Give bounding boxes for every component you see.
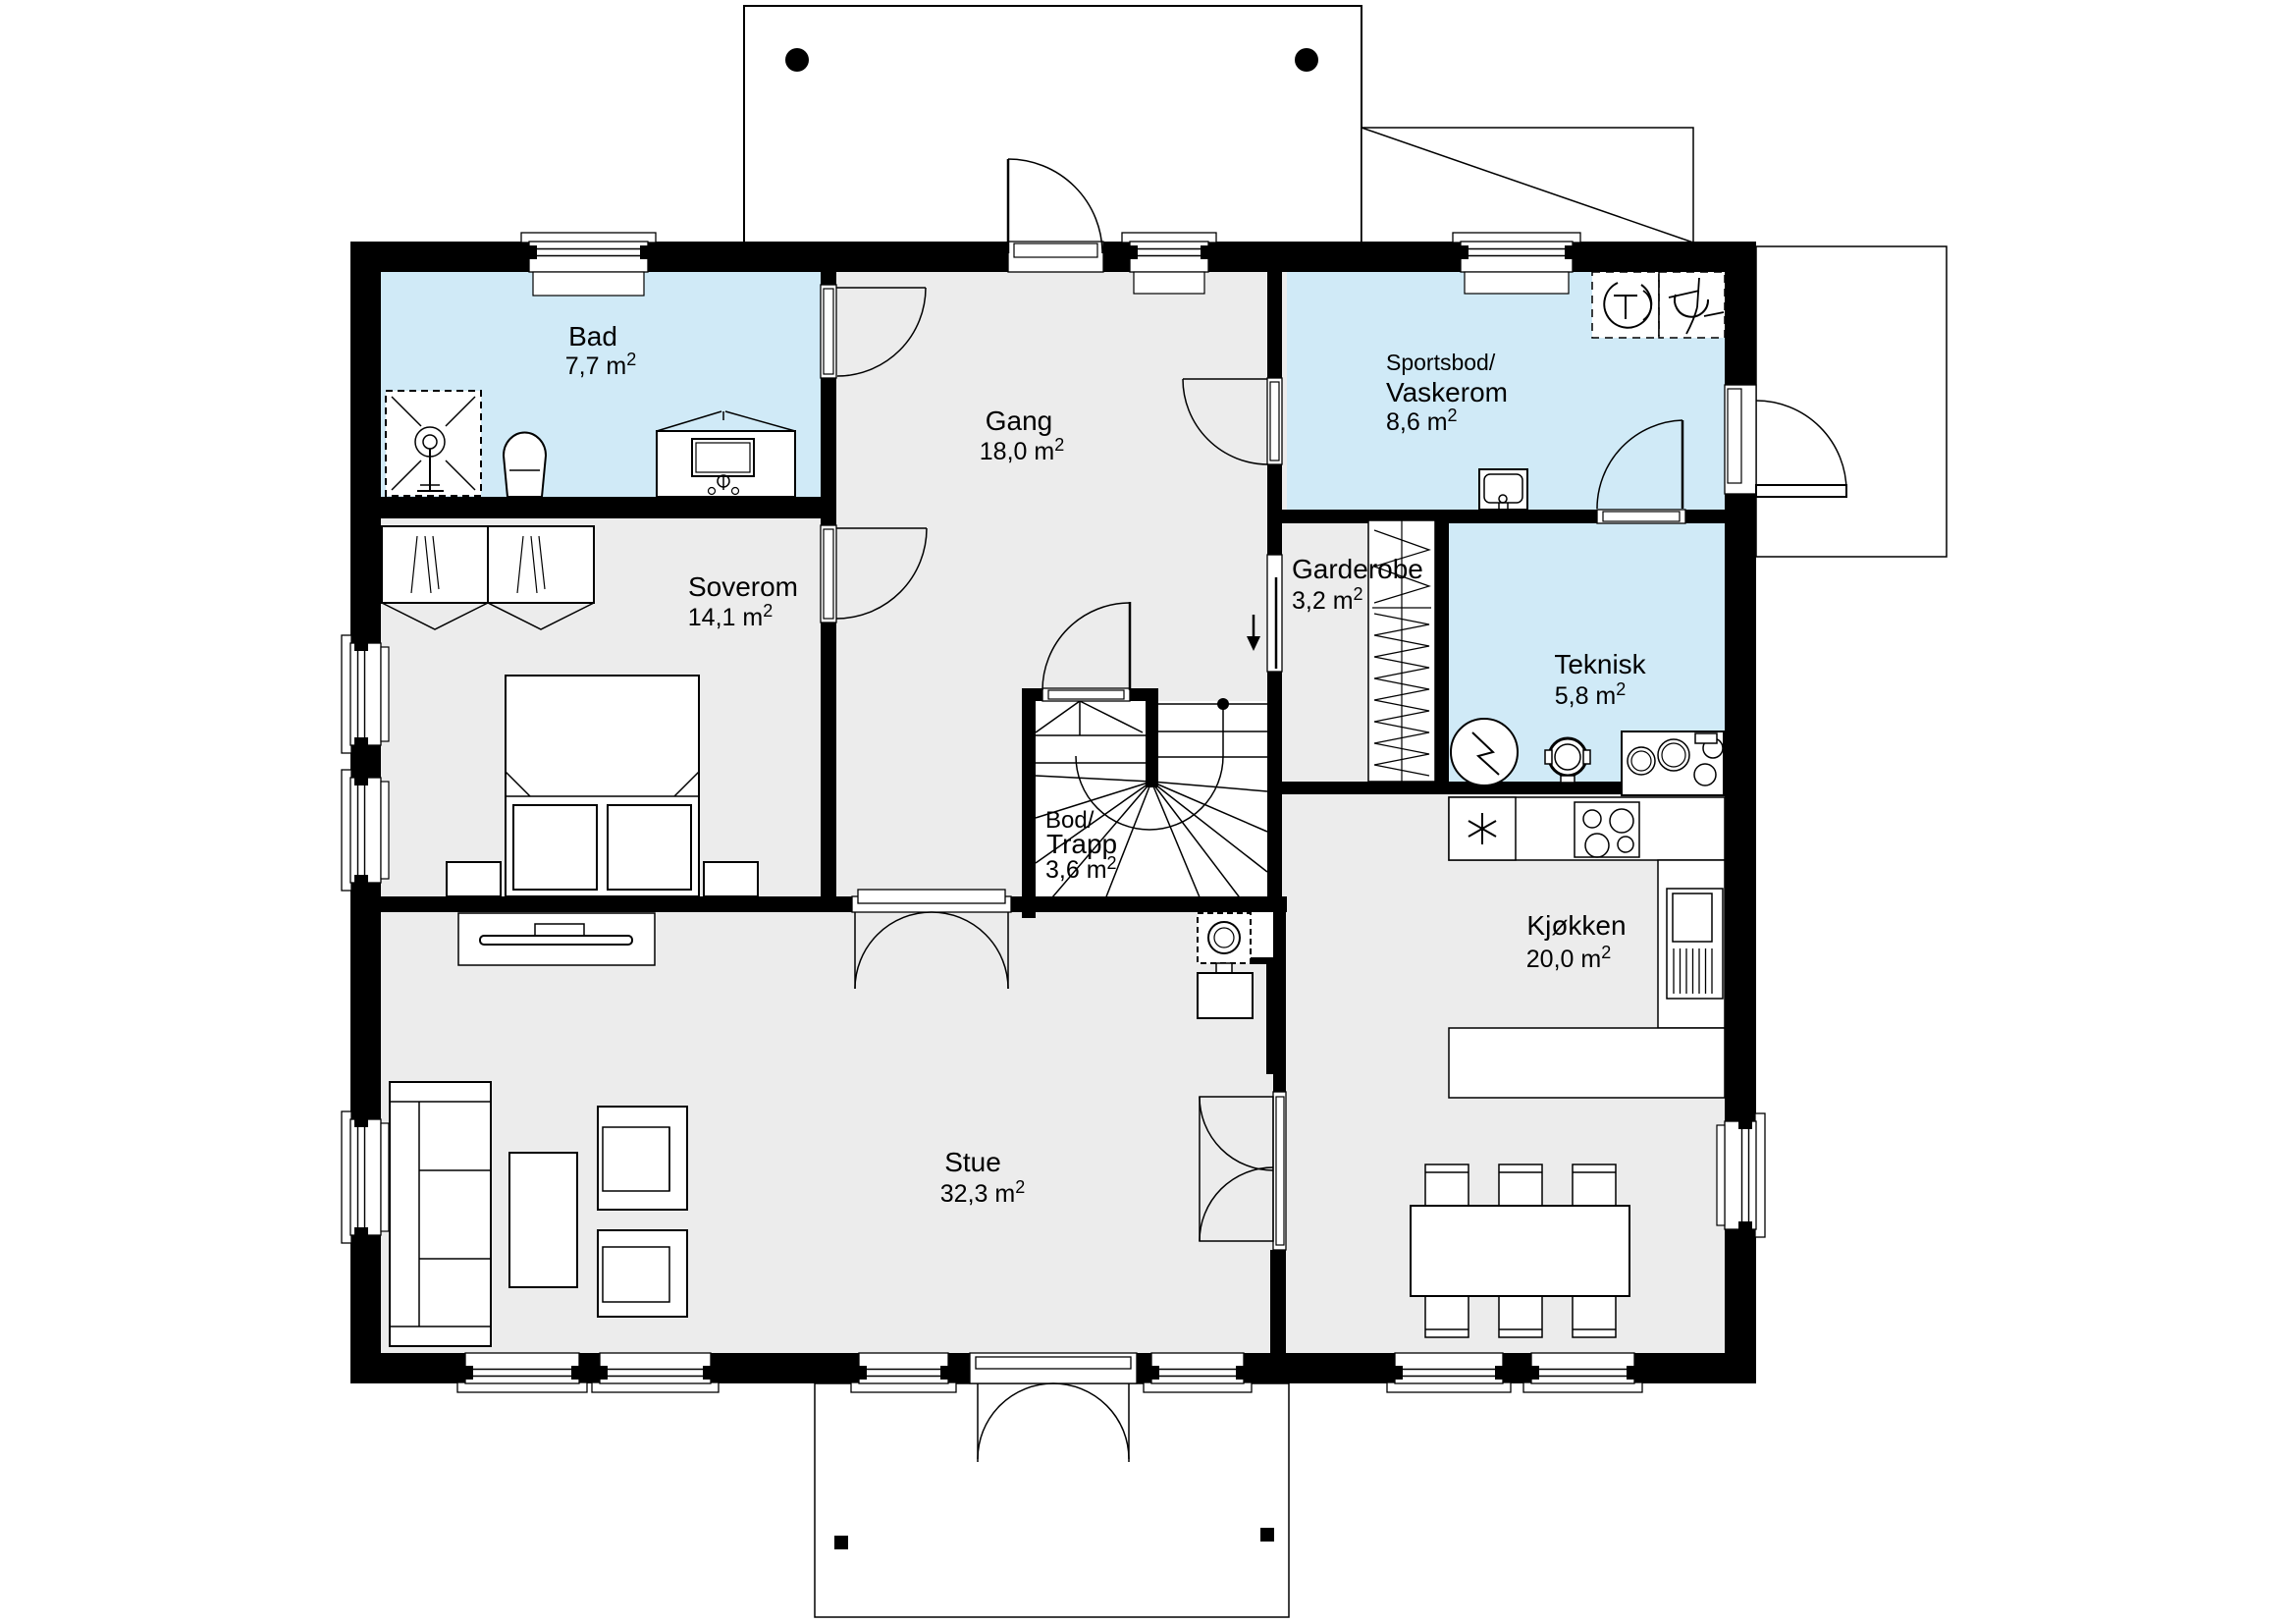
- svg-text:Vaskerom: Vaskerom: [1386, 377, 1508, 407]
- svg-text:8,6 m2: 8,6 m2: [1386, 406, 1458, 436]
- svg-text:Bad: Bad: [568, 321, 617, 352]
- svg-text:3,6 m2: 3,6 m2: [1045, 853, 1117, 884]
- svg-text:7,7 m2: 7,7 m2: [565, 350, 637, 380]
- svg-text:3,2 m2: 3,2 m2: [1292, 584, 1363, 615]
- svg-text:20,0 m2: 20,0 m2: [1526, 943, 1611, 973]
- svg-text:18,0 m2: 18,0 m2: [980, 435, 1064, 465]
- svg-text:Gang: Gang: [986, 406, 1053, 436]
- svg-text:Soverom: Soverom: [688, 571, 798, 602]
- svg-text:Garderobe: Garderobe: [1292, 554, 1423, 584]
- svg-text:14,1 m2: 14,1 m2: [688, 601, 773, 631]
- svg-text:Kjøkken: Kjøkken: [1526, 910, 1626, 941]
- svg-text:5,8 m2: 5,8 m2: [1555, 679, 1627, 710]
- svg-text:Teknisk: Teknisk: [1554, 649, 1646, 679]
- svg-text:32,3 m2: 32,3 m2: [940, 1177, 1025, 1208]
- svg-text:Stue: Stue: [944, 1147, 1001, 1177]
- svg-text:Sportsbod/: Sportsbod/: [1386, 350, 1496, 375]
